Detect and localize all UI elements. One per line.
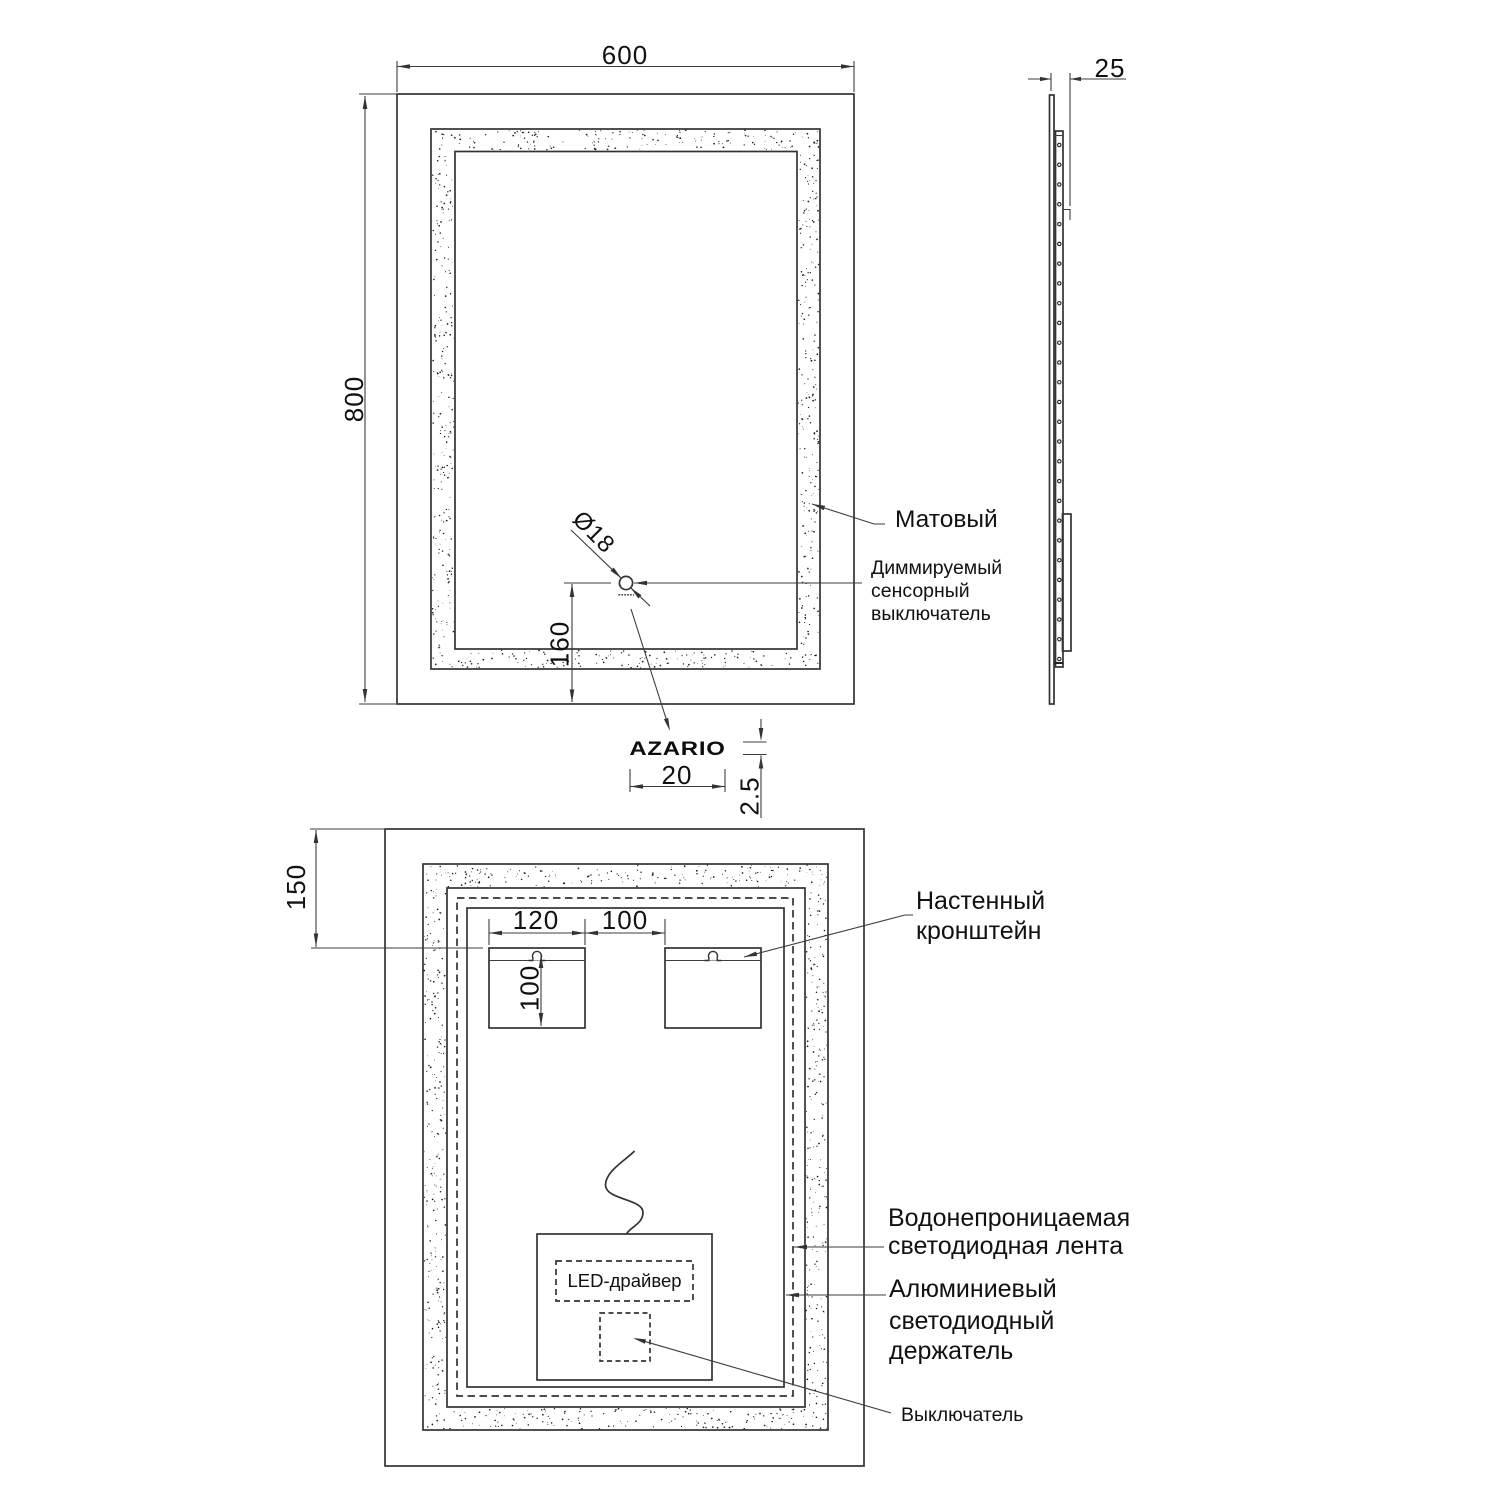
svg-text:LED-драйвер: LED-драйвер (567, 1270, 681, 1291)
svg-text:выключатель: выключатель (871, 603, 991, 625)
svg-text:25: 25 (1095, 53, 1126, 83)
svg-text:сенсорный: сенсорный (871, 580, 970, 602)
svg-text:кронштейн: кронштейн (916, 917, 1041, 945)
svg-text:Алюминиевый: Алюминиевый (889, 1275, 1057, 1303)
svg-text:120: 120 (513, 905, 559, 935)
svg-text:Водонепроницаемая: Водонепроницаемая (888, 1204, 1130, 1232)
svg-text:800: 800 (339, 376, 369, 422)
svg-text:AZARIO: AZARIO (629, 737, 725, 759)
svg-text:100: 100 (515, 965, 545, 1011)
svg-text:2.5: 2.5 (735, 776, 765, 815)
svg-text:светодиодный: светодиодный (889, 1307, 1054, 1335)
svg-text:Настенный: Настенный (916, 887, 1045, 915)
svg-text:100: 100 (602, 905, 648, 935)
svg-text:светодиодная лента: светодиодная лента (888, 1232, 1123, 1260)
svg-text:20: 20 (662, 760, 693, 790)
svg-text:Диммируемый: Диммируемый (871, 557, 1002, 579)
svg-text:Матовый: Матовый (895, 506, 998, 533)
svg-text:150: 150 (281, 864, 311, 910)
svg-text:160: 160 (545, 621, 575, 667)
svg-text:600: 600 (602, 40, 648, 70)
svg-text:держатель: держатель (889, 1337, 1013, 1365)
svg-text:Выключатель: Выключатель (901, 1404, 1023, 1426)
